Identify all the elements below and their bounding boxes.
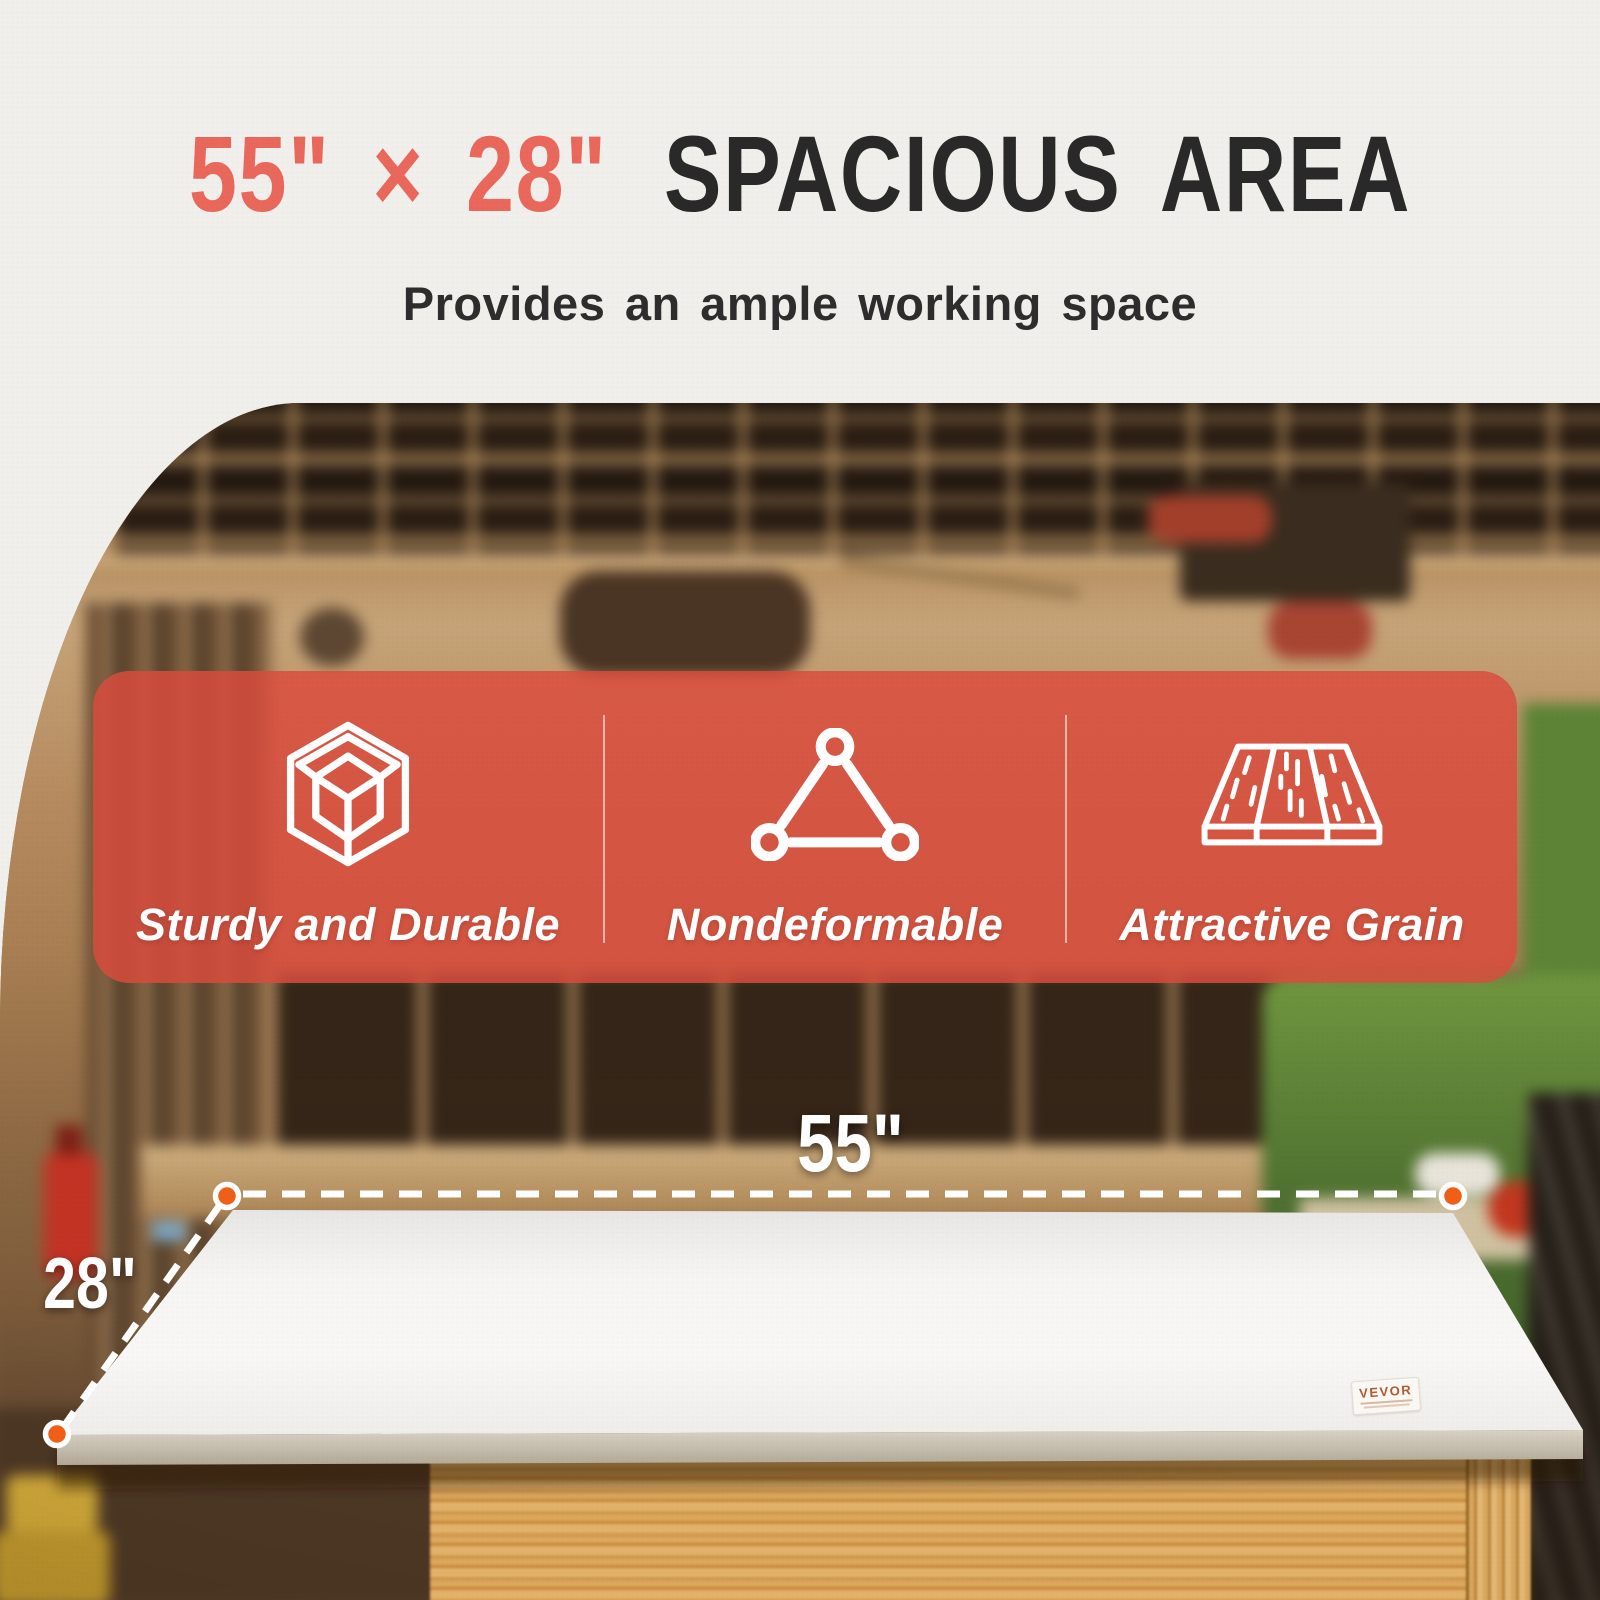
feature-label: Sturdy and Durable (136, 899, 560, 951)
vevor-logo-text: VEVOR (1352, 1383, 1419, 1401)
title-dimensions-text: 55" × 28" (189, 113, 608, 234)
feature-grain: Attractive Grain (1067, 671, 1517, 983)
feature-sturdy: Sturdy and Durable (93, 671, 603, 983)
page-title: 55" × 28" SPACIOUS AREA (160, 112, 1440, 236)
feature-nondeformable: Nondeformable (605, 671, 1065, 983)
page-subtitle: Provides an ample working space (0, 276, 1600, 331)
product-infographic: 55" × 28" SPACIOUS AREA Provides an ampl… (0, 0, 1600, 1600)
title-rest-text: SPACIOUS AREA (664, 113, 1411, 234)
width-dimension-label: 55" (775, 1097, 927, 1191)
tabletop-and-dimensions-overlay (0, 403, 1600, 1600)
corner-marker-dot (216, 1185, 239, 1208)
vevor-sticker: VEVOR (1351, 1377, 1421, 1416)
wood-planks-icon (1199, 715, 1385, 873)
feature-banner: Sturdy and Durable Nondeformable (93, 671, 1517, 983)
triangle-nodes-icon (751, 715, 919, 873)
cube-wireframe-icon (285, 715, 411, 873)
corner-marker-dot (46, 1423, 69, 1446)
workshop-photo: VEVOR 55" 28" Sturdy and Dur (0, 403, 1600, 1600)
feature-label: Attractive Grain (1119, 899, 1465, 951)
feature-label: Nondeformable (667, 899, 1004, 951)
corner-marker-dot (1442, 1185, 1465, 1208)
tabletop-edge-band (57, 1430, 1583, 1465)
sticker-fine-print (1364, 1403, 1410, 1408)
depth-dimension-label: 28" (24, 1243, 155, 1325)
